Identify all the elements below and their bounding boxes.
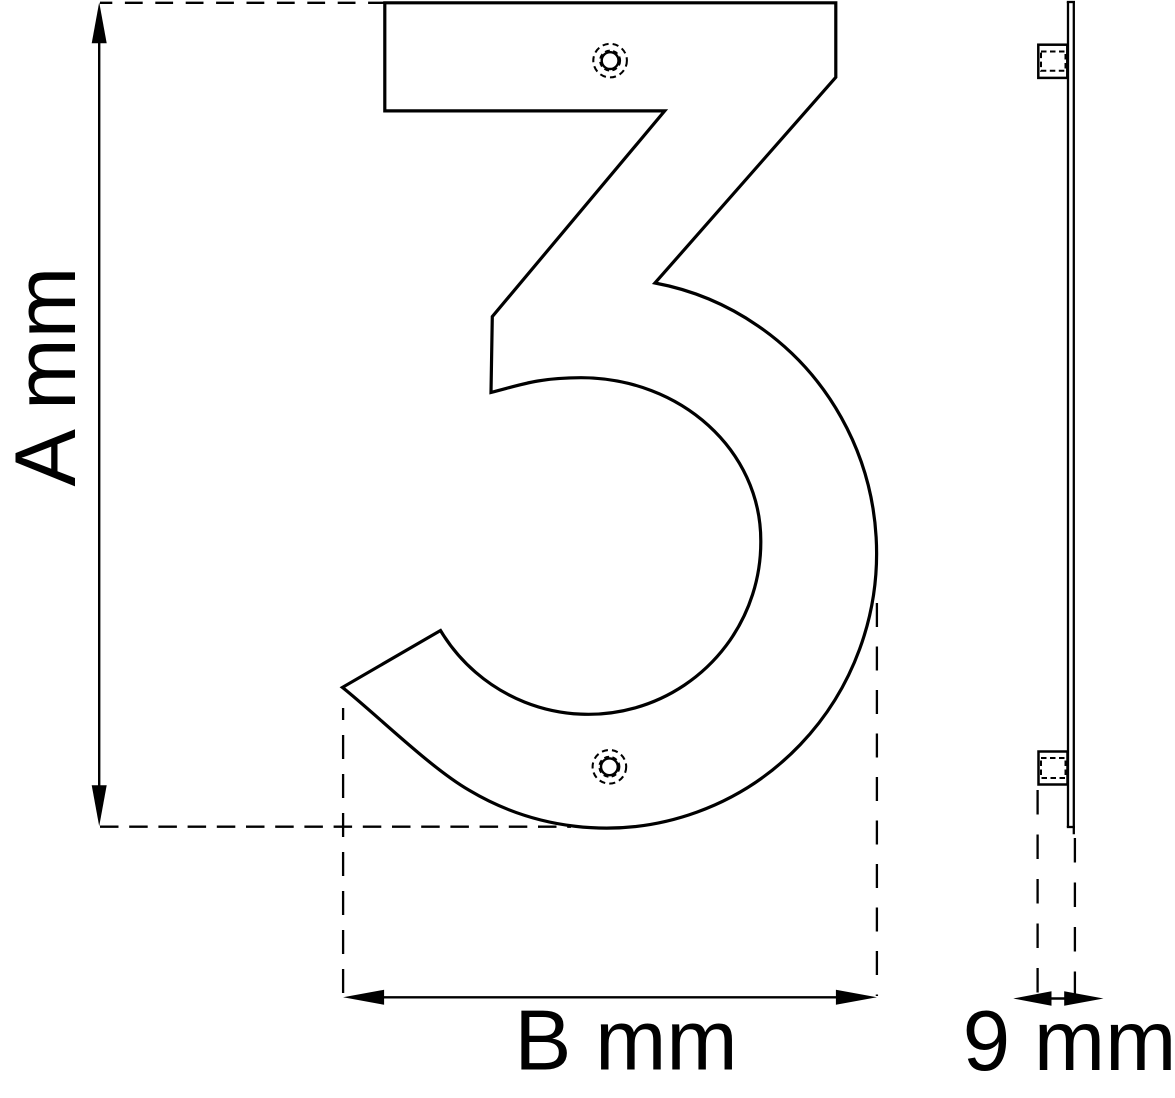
svg-text:B mm: B mm [514, 994, 737, 1089]
svg-text:9 mm: 9 mm [963, 994, 1175, 1089]
svg-text:A mm: A mm [0, 267, 94, 487]
